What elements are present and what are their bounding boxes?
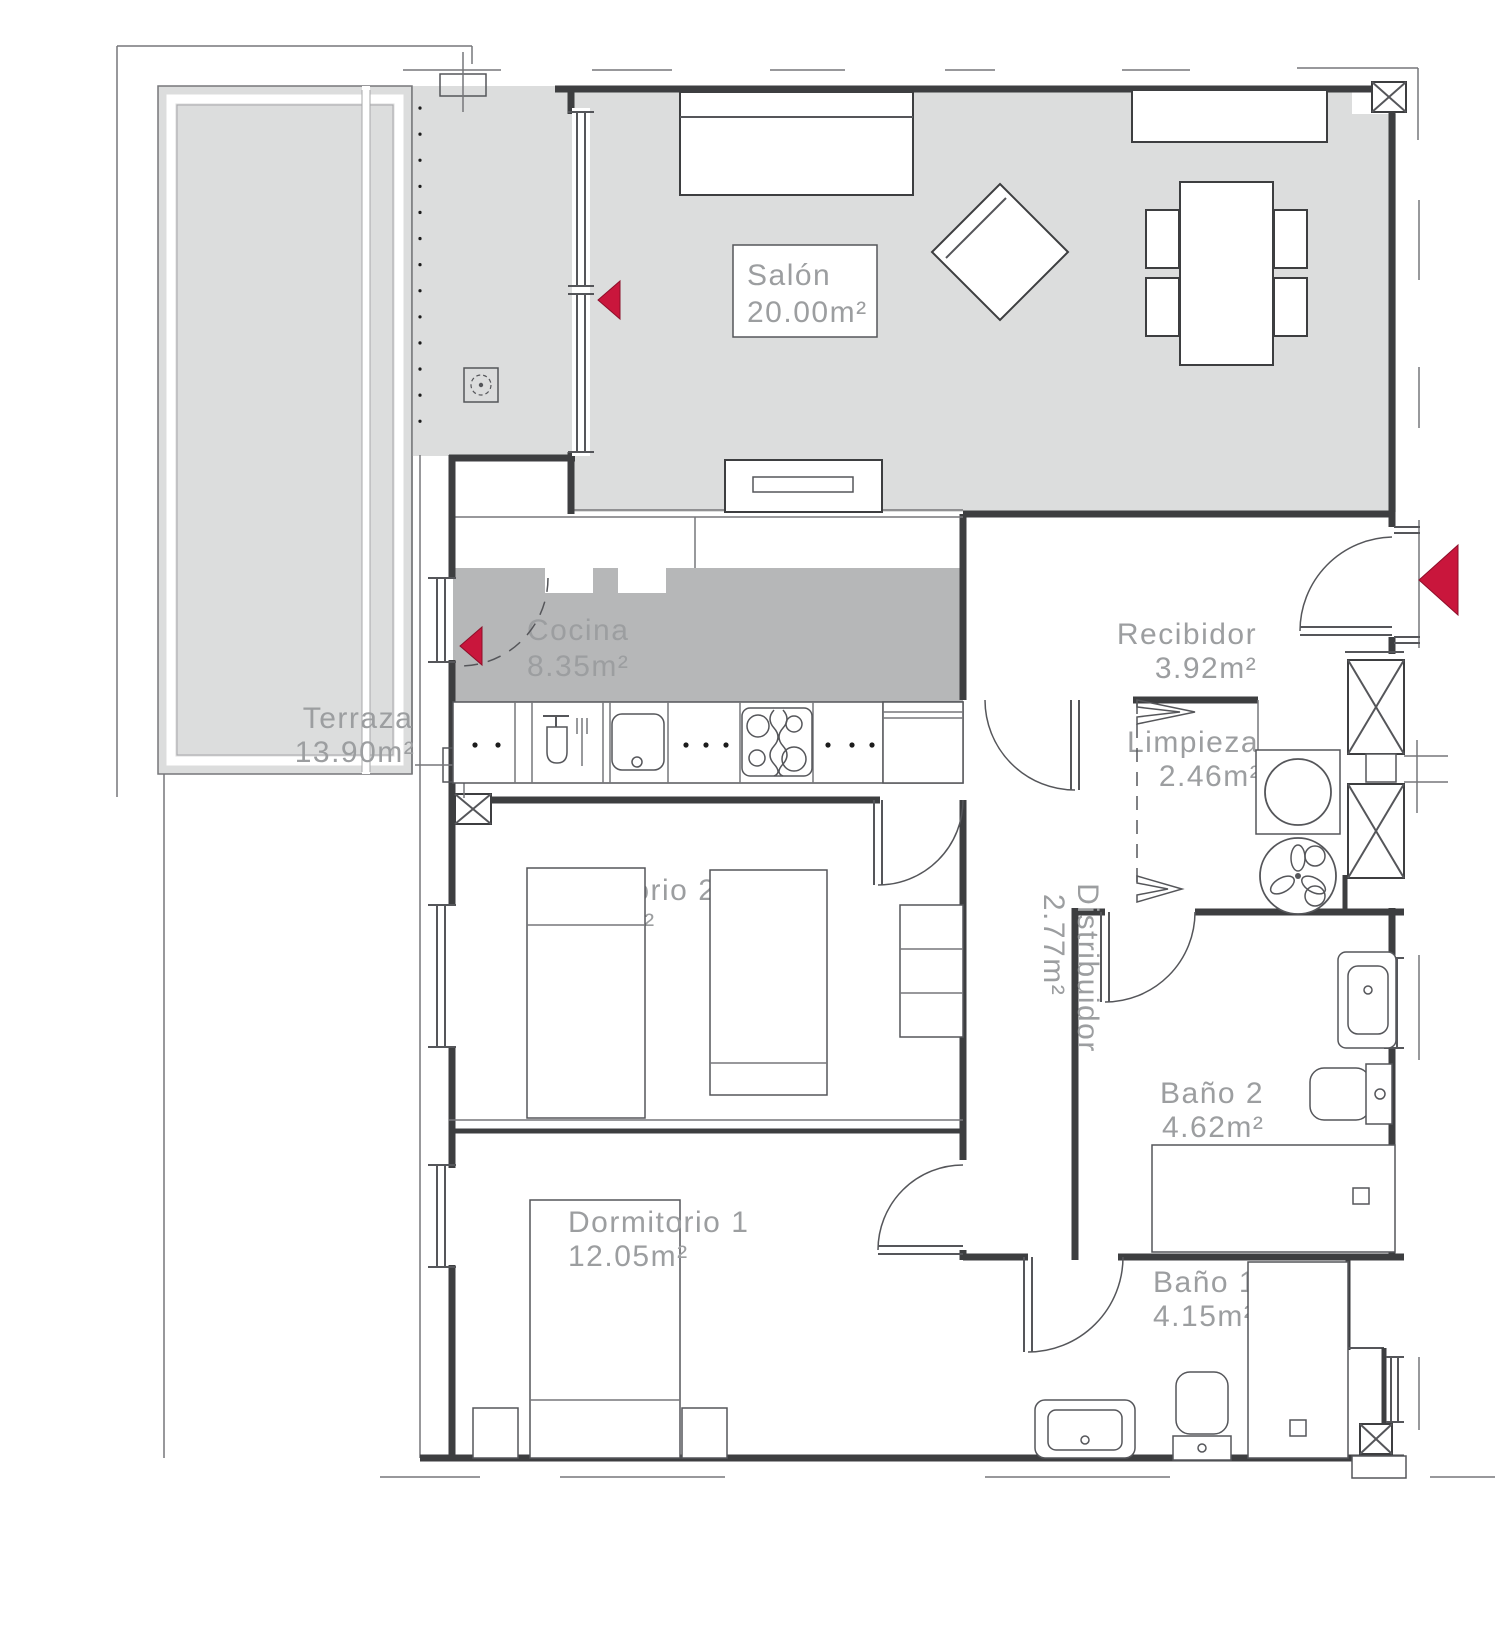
dormitorio1-window bbox=[428, 1165, 456, 1267]
distribuidor-area: 2.77m² bbox=[1037, 894, 1070, 996]
dining-chair bbox=[1146, 278, 1179, 336]
shower-tray bbox=[1248, 1262, 1348, 1458]
room-dormitorio2: Dormitorio 2 10.00m² bbox=[527, 800, 963, 1118]
terraza-floor bbox=[158, 86, 412, 774]
bano1-area: 4.15m² bbox=[1153, 1300, 1255, 1333]
washing-machine bbox=[1256, 750, 1340, 834]
bano1-window bbox=[1386, 1357, 1404, 1422]
bed-canape bbox=[710, 870, 827, 1095]
door-swing bbox=[878, 800, 963, 885]
shelving bbox=[900, 905, 963, 1037]
dormitorio1-area: 12.05m² bbox=[568, 1240, 689, 1273]
door-swing bbox=[878, 1165, 963, 1250]
vent-duct-bottom-right bbox=[1352, 1424, 1406, 1478]
entry-door bbox=[1300, 527, 1420, 643]
salon-label: Salón 20.00m² bbox=[733, 245, 877, 337]
room-limpieza: Limpieza 2.46m² bbox=[1127, 700, 1340, 914]
door-swing bbox=[1028, 1257, 1123, 1352]
duct-connector bbox=[1366, 754, 1396, 782]
dormitorio2-window bbox=[428, 905, 456, 1047]
limpieza-area: 2.46m² bbox=[1159, 760, 1261, 793]
sofa bbox=[680, 92, 913, 195]
cocina-area: 8.35m² bbox=[527, 650, 629, 683]
vent-duct-top-right bbox=[1372, 82, 1406, 112]
entrance-arrow-icon bbox=[1419, 545, 1458, 615]
toilet bbox=[1173, 1372, 1231, 1460]
door-swing bbox=[985, 700, 1075, 790]
shower-tray bbox=[1152, 1145, 1395, 1252]
dining-chair bbox=[1274, 210, 1307, 268]
kitchen-counter bbox=[453, 702, 963, 783]
room-bano1: Baño 1 4.15m² bbox=[1024, 1257, 1348, 1460]
washbasin bbox=[1338, 952, 1396, 1048]
water-heater-fan bbox=[1260, 838, 1336, 914]
floor-plan-svg: Terraza 13.90m² bbox=[0, 0, 1500, 1648]
bano2-name: Baño 2 bbox=[1160, 1077, 1264, 1110]
sideboard bbox=[1132, 90, 1327, 142]
limpieza-name: Limpieza bbox=[1127, 726, 1259, 759]
dormitorio1-name: Dormitorio 1 bbox=[568, 1206, 749, 1239]
recibidor-name: Recibidor bbox=[1117, 618, 1257, 651]
bed bbox=[527, 868, 645, 1118]
tv-unit bbox=[725, 460, 882, 512]
dining-chair bbox=[1274, 278, 1307, 336]
bano2-door bbox=[1101, 912, 1195, 1002]
terraza-name: Terraza bbox=[303, 702, 414, 735]
bano1-door bbox=[1024, 1257, 1123, 1352]
vent-duct-right-b bbox=[1348, 784, 1404, 878]
salon-area: 20.00m² bbox=[747, 296, 868, 329]
dining-chair bbox=[1146, 210, 1179, 268]
vent-duct-right-a bbox=[1348, 660, 1404, 754]
door-swing bbox=[1105, 912, 1195, 1002]
distribuidor-name: Distribuidor bbox=[1071, 883, 1104, 1053]
nightstand bbox=[682, 1408, 727, 1458]
recibidor-area: 3.92m² bbox=[1155, 652, 1257, 685]
cocina-name: Cocina bbox=[527, 614, 629, 647]
bano2-area: 4.62m² bbox=[1162, 1111, 1264, 1144]
floor-drain bbox=[464, 368, 498, 402]
bar-stool bbox=[545, 545, 593, 593]
terraza-divider bbox=[362, 86, 370, 774]
floor-plan-canvas: Terraza 13.90m² bbox=[0, 0, 1500, 1648]
fridge bbox=[883, 702, 963, 783]
bano1-name: Baño 1 bbox=[1153, 1266, 1257, 1299]
toilet bbox=[1310, 1064, 1392, 1124]
nightstand bbox=[473, 1408, 518, 1458]
door-swing bbox=[1300, 537, 1392, 631]
room-dormitorio1: Dormitorio 1 12.05m² bbox=[473, 1165, 963, 1458]
room-bano2: Baño 2 4.62m² bbox=[1101, 912, 1396, 1252]
room-distribuidor: Distribuidor 2.77m² bbox=[1037, 883, 1104, 1053]
washbasin bbox=[1035, 1400, 1135, 1458]
dormitorio2-door bbox=[874, 800, 963, 885]
terraza-area: 13.90m² bbox=[295, 736, 416, 769]
salon-name: Salón bbox=[747, 259, 831, 292]
dormitorio1-door bbox=[878, 1165, 963, 1254]
distribuidor-door bbox=[985, 700, 1079, 790]
bar-stool bbox=[618, 545, 666, 593]
